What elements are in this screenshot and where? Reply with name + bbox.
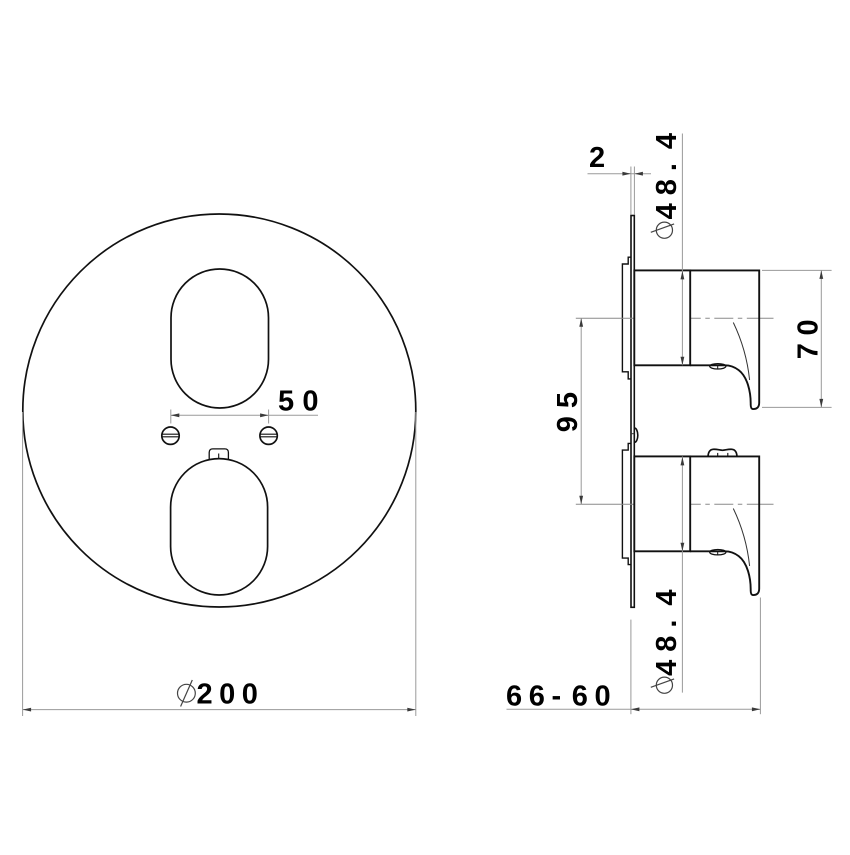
svg-text:50: 50 [278, 386, 327, 418]
svg-text:2: 2 [589, 142, 605, 174]
svg-text:70: 70 [792, 312, 824, 360]
svg-text:95: 95 [552, 384, 584, 432]
svg-text:48.4: 48.4 [651, 125, 683, 219]
svg-text:200: 200 [197, 679, 265, 711]
svg-text:48.4: 48.4 [651, 581, 683, 675]
svg-text:66-60: 66-60 [506, 681, 617, 713]
